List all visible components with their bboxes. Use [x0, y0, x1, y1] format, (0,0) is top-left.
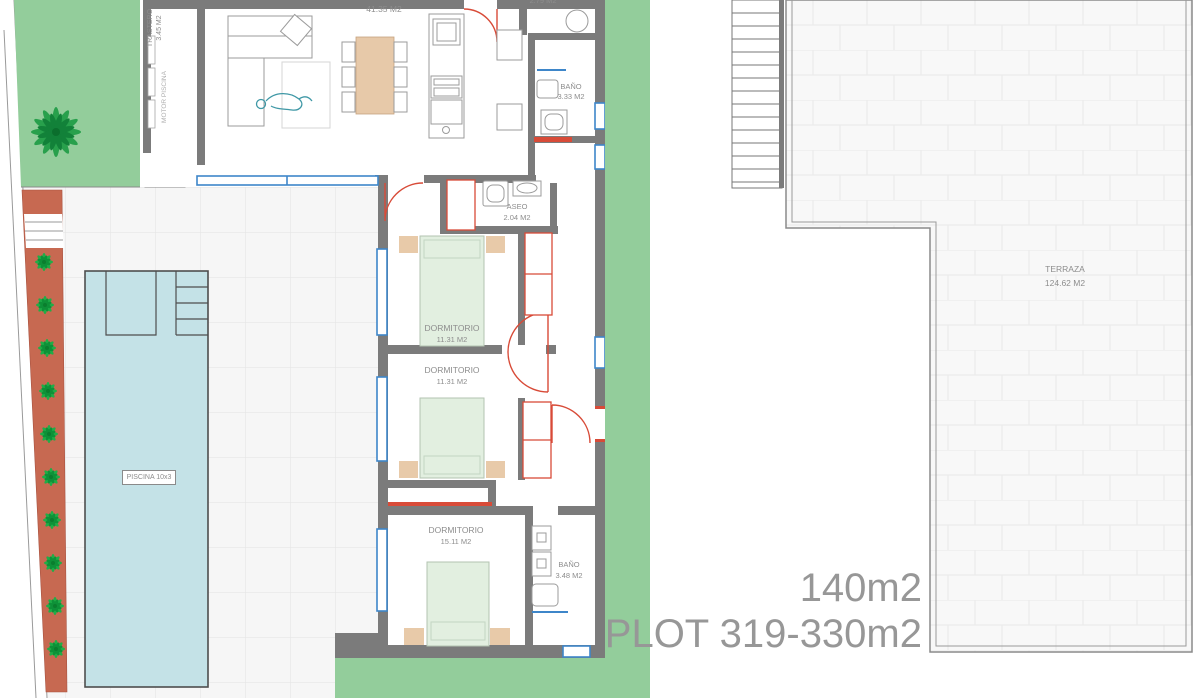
plant-icon	[40, 425, 58, 443]
dining-table	[342, 37, 407, 114]
bed	[420, 236, 484, 346]
built-area-text: 140m2	[600, 566, 922, 610]
nightstand	[399, 461, 418, 478]
terraza-area	[786, 0, 1192, 652]
plant-icon	[44, 554, 62, 572]
plant-icon	[46, 597, 64, 615]
green-strip-bottom	[335, 658, 650, 698]
room-label-motor-piscina: MOTOR PISCINA	[160, 62, 170, 132]
bed	[420, 398, 484, 478]
nightstand	[486, 461, 505, 478]
room-label-trastero: TRASTERO 3.45 M2	[146, 0, 168, 60]
nightstand	[486, 236, 505, 253]
plot-size-text: PLOT 319-330m2	[600, 612, 922, 656]
bed	[427, 562, 489, 646]
plant-icon	[35, 253, 53, 271]
floor-plan: TRASTERO 3.45 M2 MOTOR PISCINA 41.35 M2 …	[0, 0, 1200, 698]
plant-icon	[39, 382, 57, 400]
boiler-icon	[566, 10, 588, 32]
pool-label: PISCINA 10x3	[122, 470, 176, 485]
plant-icon	[43, 511, 61, 529]
nightstand	[404, 628, 424, 645]
plant-icon	[42, 468, 60, 486]
plant-icon	[47, 640, 65, 658]
trastero-name: TRASTERO	[146, 0, 155, 60]
garden	[14, 0, 140, 187]
plant-icon	[36, 296, 54, 314]
nightstand	[399, 236, 418, 253]
terrace-stairs	[732, 0, 784, 188]
trastero-area: 3.45 M2	[155, 0, 164, 60]
side-door-opening	[595, 409, 605, 439]
plant-icon	[38, 339, 56, 357]
nightstand	[490, 628, 510, 645]
